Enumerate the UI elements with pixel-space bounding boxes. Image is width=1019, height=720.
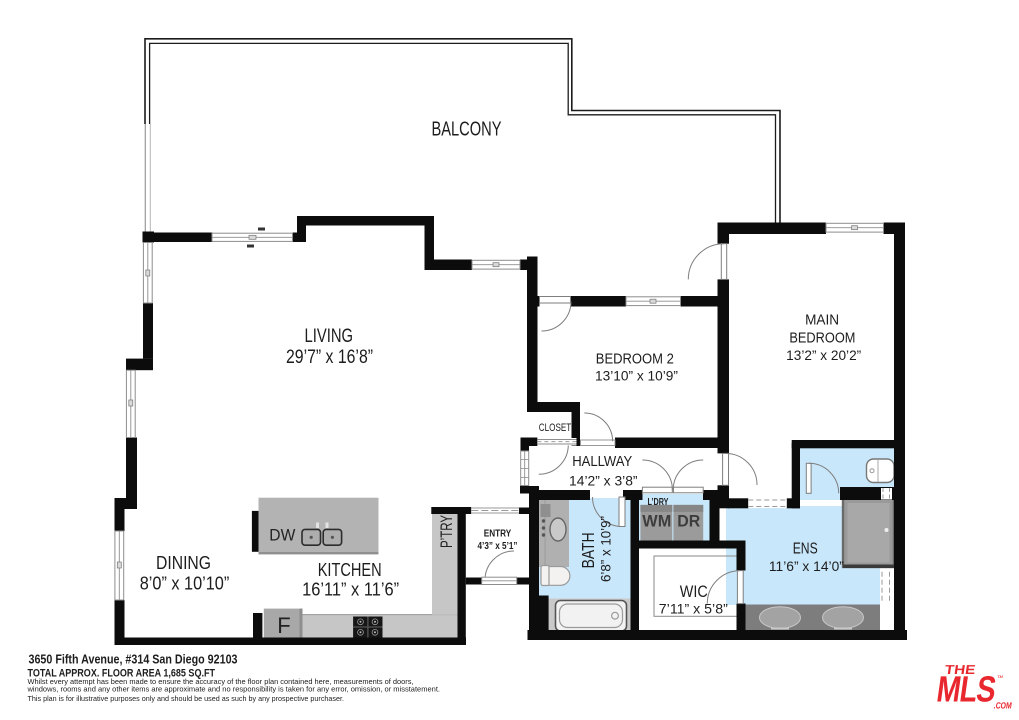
svg-text:8’0” x 10’10”: 8’0” x 10’10”: [140, 573, 230, 594]
svg-text:windows, rooms and any other i: windows, rooms and any other items are a…: [26, 685, 440, 694]
svg-text:HALLWAY: HALLWAY: [572, 453, 632, 470]
svg-text:13’2” x 20’2”: 13’2” x 20’2”: [786, 348, 861, 363]
svg-text:14’2” x 3’8”: 14’2” x 3’8”: [569, 473, 638, 488]
svg-text:BATH: BATH: [578, 532, 598, 568]
svg-text:3650 Fifth Avenue, #314 San Di: 3650 Fifth Avenue, #314 San Diego 92103: [29, 652, 238, 667]
svg-text:6’8” x 10’9”: 6’8” x 10’9”: [598, 516, 614, 582]
svg-text:™: ™: [996, 675, 1003, 682]
svg-text:11’6” x 14’0”: 11’6” x 14’0”: [769, 558, 844, 574]
svg-text:BEDROOM 2: BEDROOM 2: [596, 351, 674, 368]
svg-text:BALCONY: BALCONY: [432, 118, 502, 140]
svg-text:4’3” x 5’1”: 4’3” x 5’1”: [478, 541, 518, 552]
svg-text:13’10” x 10’9”: 13’10” x 10’9”: [595, 369, 678, 384]
svg-text:KITCHEN: KITCHEN: [318, 559, 382, 580]
svg-text:MLS: MLS: [934, 669, 998, 710]
svg-text:16’11” x 11’6”: 16’11” x 11’6”: [302, 578, 399, 599]
svg-text:7’11” x 5’8”: 7’11” x 5’8”: [659, 601, 728, 616]
svg-text:F: F: [277, 613, 290, 638]
svg-text:BEDROOM: BEDROOM: [789, 331, 855, 347]
svg-text:.COM: .COM: [993, 701, 1012, 711]
svg-text:L’DRY: L’DRY: [648, 497, 669, 508]
svg-text:LIVING: LIVING: [305, 326, 354, 347]
svg-text:MAIN: MAIN: [805, 311, 839, 328]
svg-text:DW: DW: [269, 526, 295, 545]
svg-text:29’7” x 16’8”: 29’7” x 16’8”: [286, 346, 373, 368]
svg-text:ENS: ENS: [793, 541, 818, 558]
svg-text:WM: WM: [642, 512, 671, 531]
svg-text:P’TRY: P’TRY: [438, 515, 456, 548]
svg-text:ENTRY: ENTRY: [484, 528, 512, 539]
svg-text:DR: DR: [677, 512, 700, 531]
svg-text:DINING: DINING: [156, 553, 211, 573]
svg-text:CLOSET: CLOSET: [539, 422, 572, 434]
svg-text:This plan is for illustrative: This plan is for illustrative purposes o…: [28, 694, 345, 703]
svg-text:WIC: WIC: [680, 583, 708, 601]
